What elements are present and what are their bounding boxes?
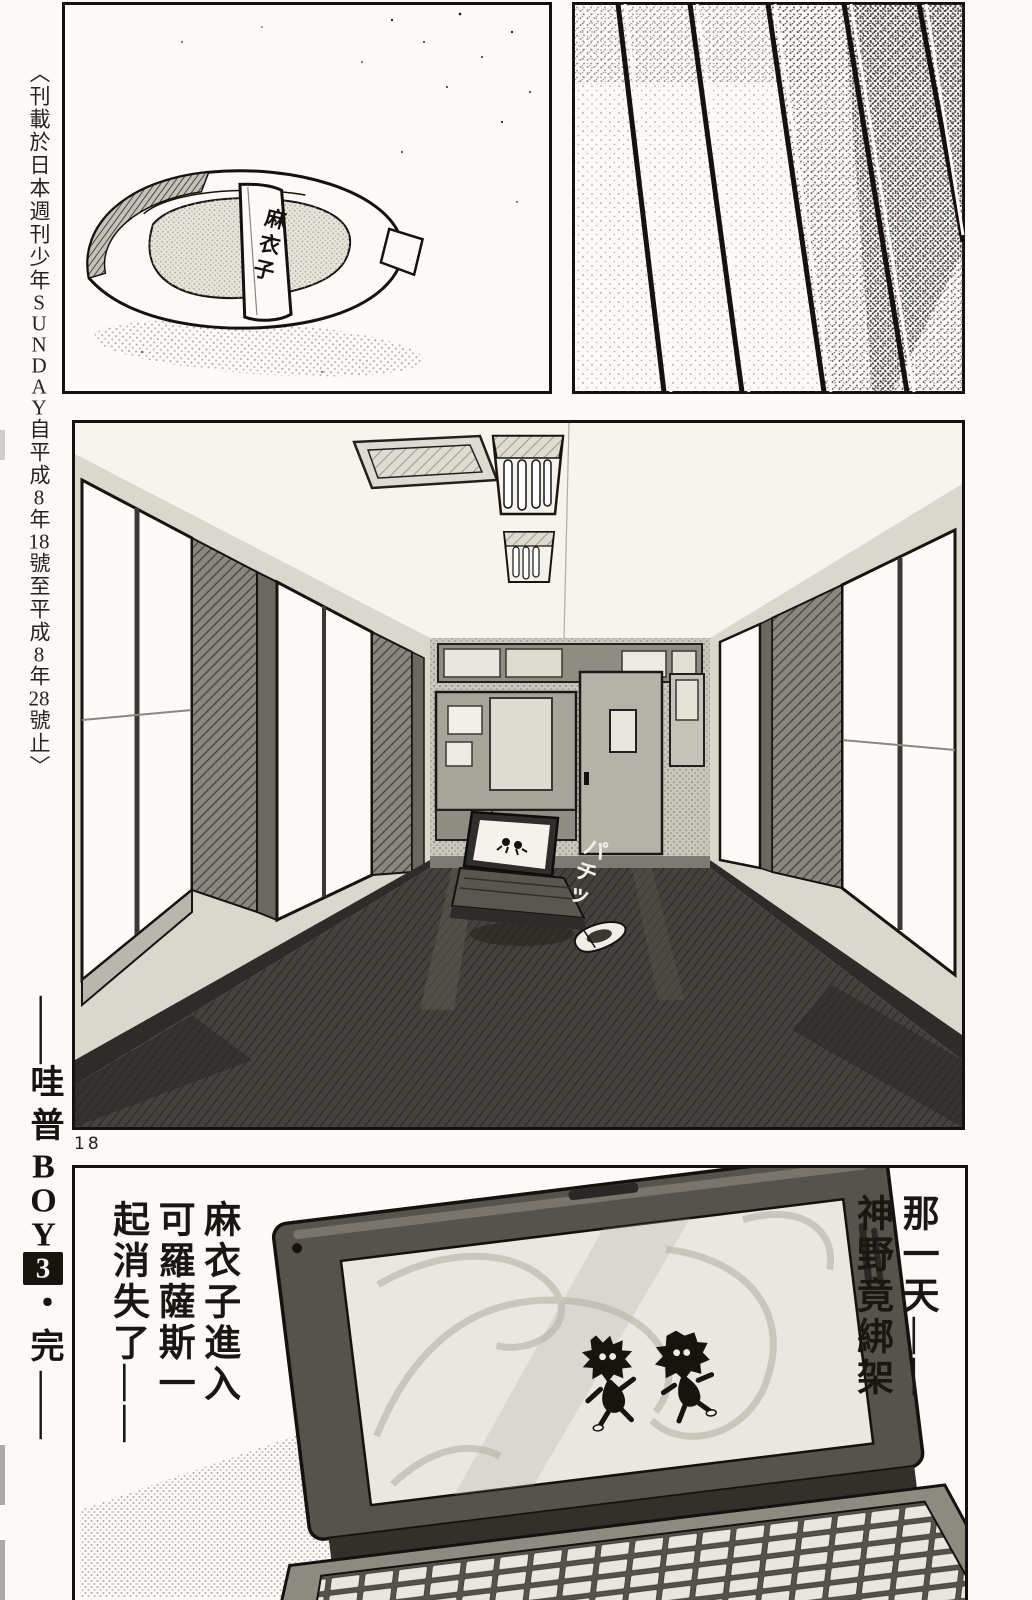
- pillar-left-far: [372, 632, 412, 875]
- caption-right: 那一天—— 神野竟綁架: [846, 1194, 940, 1484]
- caption-line: 那一天——: [895, 1194, 938, 1484]
- scan-edge-artifact: [0, 430, 5, 460]
- panel-slipper: [62, 2, 552, 394]
- light-fixture-near: [493, 436, 563, 514]
- end-wall-side-frame: [670, 674, 704, 766]
- pillar-right-near: [772, 585, 842, 888]
- pillar-left-near: [192, 538, 257, 912]
- scan-edge-artifact: [0, 1445, 5, 1505]
- volume-badge: 3: [23, 1252, 63, 1285]
- manga-page: 〈刊載於日本週刊少年SUNDAY自平成8年18號至平成8年28號止〉 ——哇普B…: [0, 0, 1032, 1600]
- caption-line: 起消失了——: [105, 1200, 148, 1520]
- panel-speed-lines: [572, 2, 965, 394]
- caption-line: 神野竟綁架: [849, 1194, 892, 1484]
- light-fixture-far: [504, 532, 554, 582]
- scan-edge-artifact: [0, 1540, 5, 1600]
- end-wall-door: [580, 672, 662, 854]
- page-number: 18: [74, 1134, 102, 1154]
- caption-line: 麻衣子進入: [196, 1200, 239, 1520]
- panel-hallway: [72, 420, 965, 1130]
- ceiling-vent: [354, 436, 497, 488]
- margin-note: 〈刊載於日本週刊少年SUNDAY自平成8年18號至平成8年28號止〉: [28, 62, 50, 862]
- caption-left: 麻衣子進入 可羅薩斯一 起消失了——: [102, 1200, 242, 1520]
- caption-line: 可羅薩斯一: [151, 1200, 194, 1520]
- series-label: ——哇普BOY3・完——: [26, 996, 60, 1576]
